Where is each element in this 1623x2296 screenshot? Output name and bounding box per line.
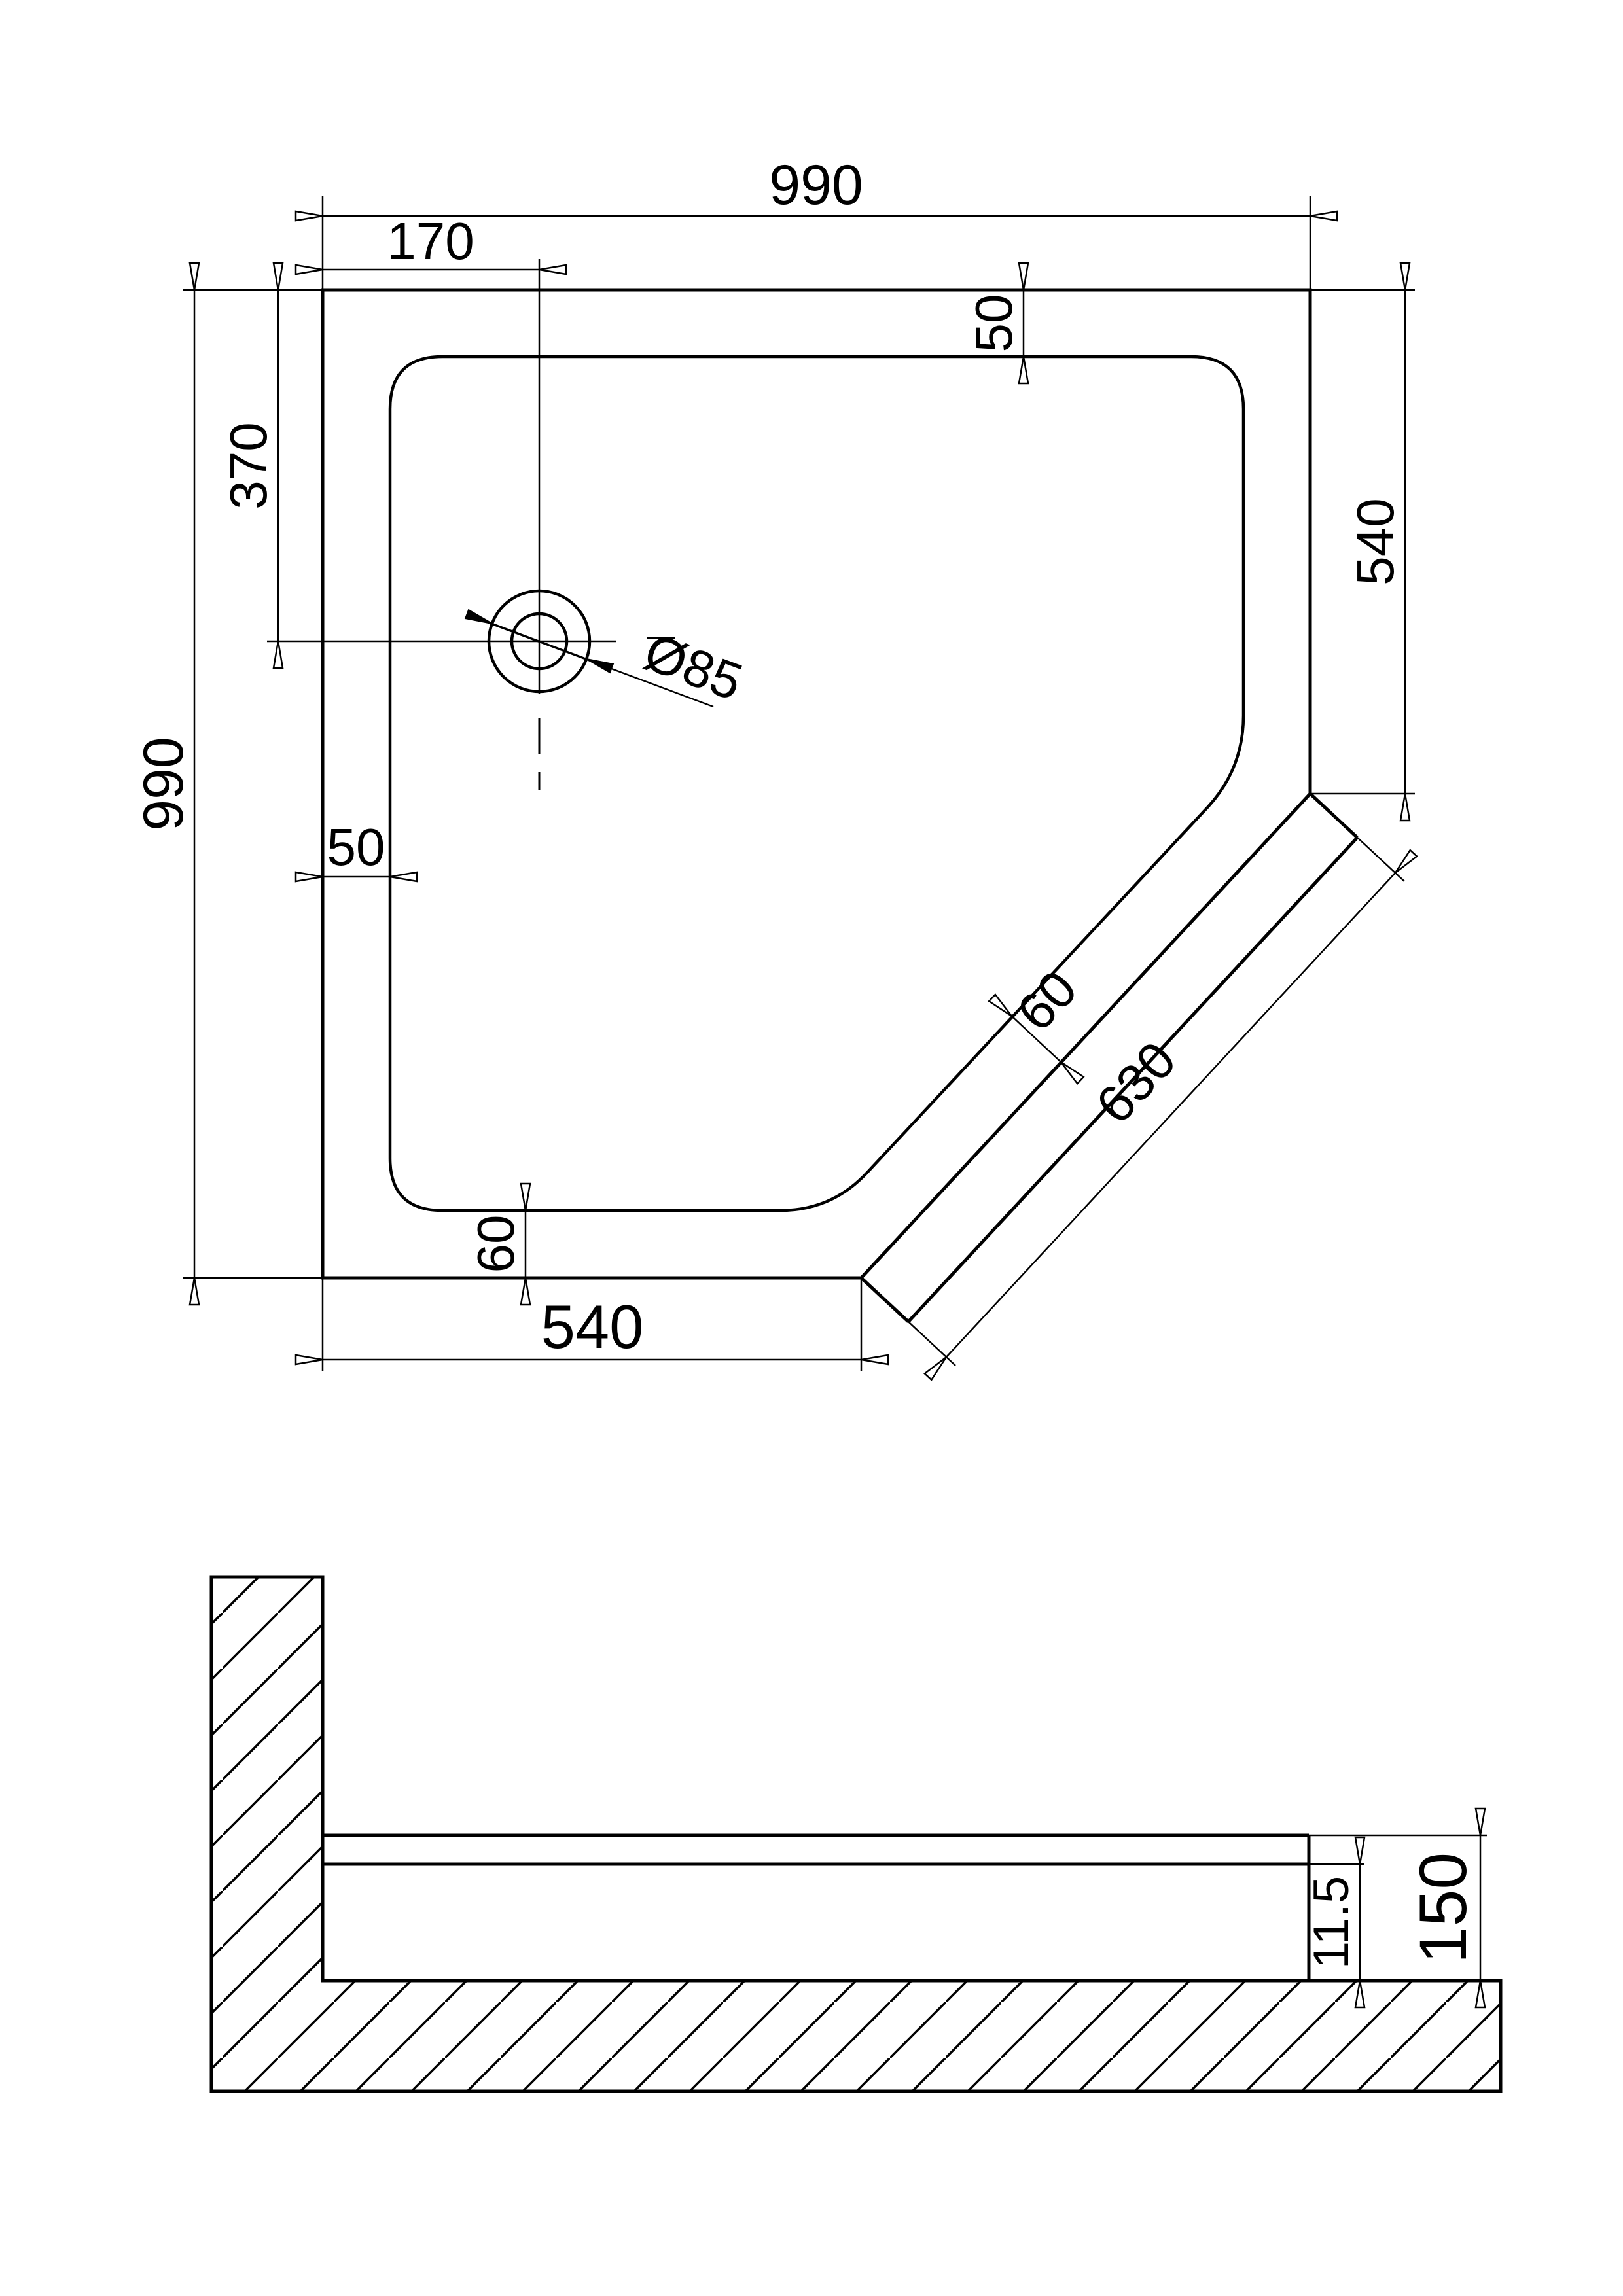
dim-bottom-edge-label: 540	[541, 1292, 644, 1361]
dim-rim-left-label: 50	[327, 818, 385, 876]
dim-chamfer-length-label: 630	[1085, 1031, 1187, 1134]
dim-rim-chamfer-label: 60	[1006, 959, 1088, 1042]
dim-section-height-label: 150	[1406, 1852, 1480, 1964]
dim-rim-bottom-label: 60	[467, 1215, 525, 1273]
dim-drain-diameter-label: Ø85	[637, 622, 750, 711]
section-view: 11.5 150	[211, 1577, 1501, 2091]
dim-right-edge-label: 540	[1346, 498, 1404, 585]
top-view: 990 170 50 540 990 370 Ø85 50 60 630 60 …	[132, 154, 1415, 1371]
tray-outer-outline	[323, 290, 1310, 1278]
technical-drawing: 990 170 50 540 990 370 Ø85 50 60 630 60 …	[0, 0, 1623, 2296]
technical-drawing-page: 990 170 50 540 990 370 Ø85 50 60 630 60 …	[0, 0, 1623, 2296]
dim-inner-depth-label: 11.5	[1304, 1876, 1359, 1969]
chamfer-ext-bottom	[908, 1322, 955, 1366]
dim-overall-height-label: 990	[132, 737, 195, 831]
dim-drain-offset-y-label: 370	[219, 422, 277, 509]
dim-drain-offset-x-label: 170	[387, 212, 474, 270]
dim-top-width-label: 990	[769, 154, 863, 217]
chamfer-flange-cap-bottom	[861, 1278, 908, 1322]
chamfer-flange-cap-top	[1310, 794, 1357, 838]
dim-rim-top-label: 50	[965, 294, 1023, 353]
chamfer-ext-top	[1357, 838, 1404, 881]
